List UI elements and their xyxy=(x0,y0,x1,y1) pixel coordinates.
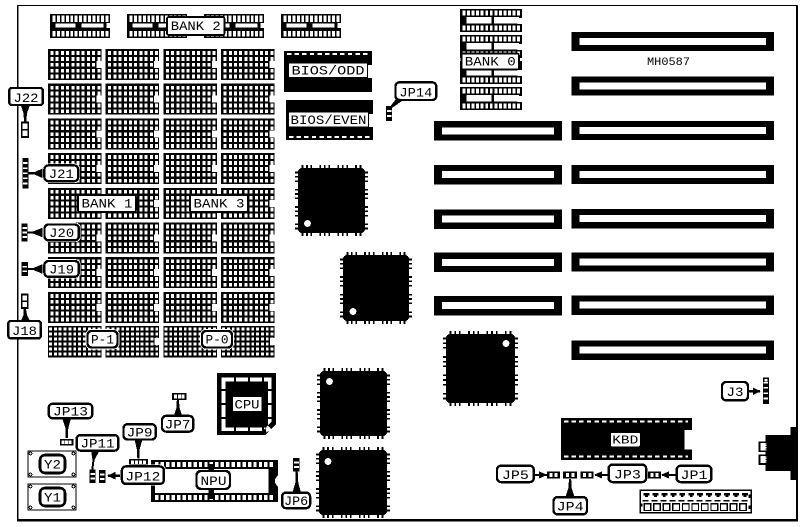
svg-text:J3: J3 xyxy=(727,386,744,400)
svg-text:J18: J18 xyxy=(12,325,37,339)
svg-text:J22: J22 xyxy=(14,92,39,106)
svg-text:BANK 2: BANK 2 xyxy=(171,19,221,34)
svg-text:BANK 3: BANK 3 xyxy=(194,197,245,212)
svg-text:JP11: JP11 xyxy=(81,438,115,452)
svg-text:JP1: JP1 xyxy=(681,469,708,483)
svg-text:J19: J19 xyxy=(49,264,74,278)
svg-text:JP7: JP7 xyxy=(165,418,191,432)
svg-text:JP13: JP13 xyxy=(53,405,88,419)
svg-text:BANK 0: BANK 0 xyxy=(465,55,516,70)
svg-text:BIOS/ODD: BIOS/ODD xyxy=(292,64,365,79)
svg-text:JP14: JP14 xyxy=(399,87,432,101)
svg-text:CPU: CPU xyxy=(235,398,260,412)
svg-text:BIOS/EVEN: BIOS/EVEN xyxy=(291,113,367,128)
svg-text:JP3: JP3 xyxy=(614,469,641,483)
svg-text:JP12: JP12 xyxy=(125,471,160,485)
svg-text:J20: J20 xyxy=(49,227,74,241)
svg-text:KBD: KBD xyxy=(612,434,638,448)
svg-text:JP9: JP9 xyxy=(127,427,153,441)
svg-text:JP5: JP5 xyxy=(502,469,529,483)
svg-text:NPU: NPU xyxy=(201,475,227,489)
svg-text:J21: J21 xyxy=(49,168,74,182)
svg-text:Y2: Y2 xyxy=(44,458,61,472)
svg-text:JP6: JP6 xyxy=(284,495,308,509)
svg-text:P-0: P-0 xyxy=(206,333,229,347)
svg-text:JP4: JP4 xyxy=(557,501,584,515)
svg-text:BANK 1: BANK 1 xyxy=(82,197,133,212)
svg-text:MH0587: MH0587 xyxy=(647,57,690,69)
svg-text:Y1: Y1 xyxy=(44,491,61,505)
svg-text:P-1: P-1 xyxy=(91,333,114,347)
